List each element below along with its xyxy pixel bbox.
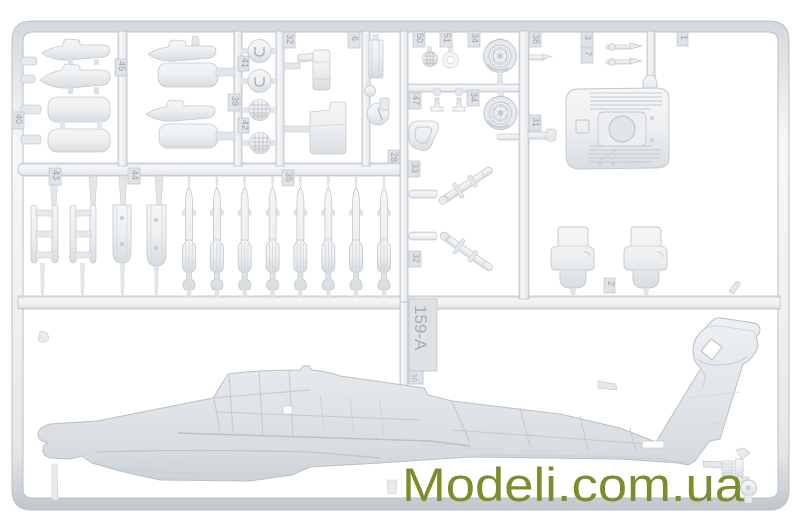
svg-text:1: 1 [679, 35, 689, 40]
svg-text:2: 2 [606, 281, 616, 286]
svg-text:40: 40 [14, 114, 24, 124]
svg-text:34: 34 [470, 33, 480, 43]
svg-text:42: 42 [240, 120, 250, 130]
svg-text:47: 47 [411, 95, 421, 105]
svg-text:32: 32 [285, 34, 295, 44]
svg-text:38: 38 [531, 34, 541, 44]
svg-text:51: 51 [442, 33, 452, 43]
svg-text:34: 34 [469, 92, 479, 102]
svg-text:Modeli.com.ua: Modeli.com.ua [402, 458, 745, 511]
svg-text:33: 33 [410, 163, 420, 173]
svg-text:7: 7 [583, 51, 593, 56]
svg-text:6: 6 [350, 36, 360, 41]
svg-text:31: 31 [531, 117, 541, 127]
svg-text:41: 41 [240, 58, 250, 68]
svg-text:43: 43 [51, 170, 61, 180]
svg-text:45: 45 [117, 61, 127, 71]
svg-text:39: 39 [230, 96, 240, 106]
svg-text:28: 28 [389, 152, 399, 162]
svg-text:10: 10 [410, 374, 417, 382]
svg-text:159-A: 159-A [411, 305, 430, 351]
svg-text:44: 44 [130, 170, 140, 180]
svg-text:32: 32 [411, 253, 421, 263]
svg-text:50: 50 [415, 33, 425, 43]
svg-text:3: 3 [583, 35, 593, 40]
svg-text:35: 35 [284, 172, 294, 182]
